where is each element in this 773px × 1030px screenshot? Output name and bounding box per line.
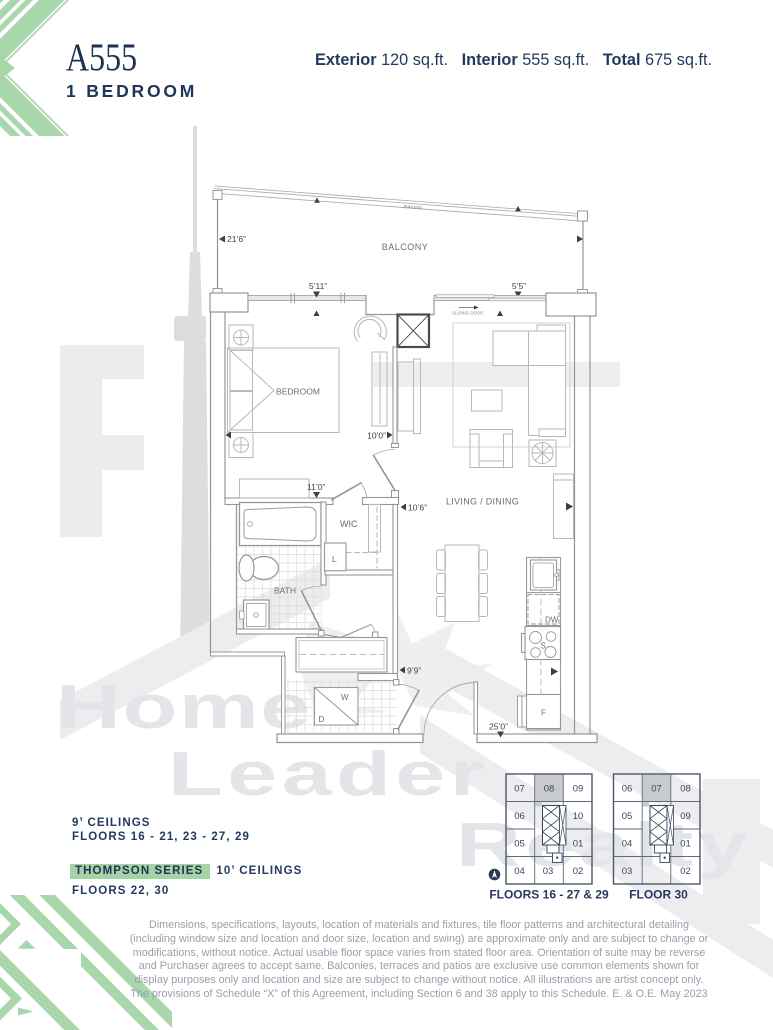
svg-text:09: 09	[573, 784, 584, 795]
svg-text:10’6”: 10’6”	[408, 503, 427, 513]
svg-text:RAILING: RAILING	[404, 204, 423, 210]
svg-text:DW: DW	[545, 616, 559, 625]
svg-text:03: 03	[543, 866, 554, 877]
svg-text:LIVING / DINING: LIVING / DINING	[446, 497, 519, 507]
svg-text:S: S	[541, 642, 546, 651]
svg-text:09: 09	[680, 811, 691, 822]
svg-text:WIC: WIC	[340, 519, 358, 529]
svg-text:04: 04	[514, 866, 525, 877]
svg-text:01: 01	[573, 839, 584, 850]
svg-text:5’11”: 5’11”	[309, 281, 327, 291]
svg-text:FLOOR 30: FLOOR 30	[629, 888, 688, 902]
svg-text:Leader: Leader	[168, 740, 489, 809]
svg-text:SLIDING DOOR: SLIDING DOOR	[452, 311, 483, 316]
svg-text:06: 06	[514, 811, 525, 822]
svg-text:9’9”: 9’9”	[407, 666, 421, 676]
svg-text:05: 05	[514, 839, 525, 850]
svg-text:11’0”: 11’0”	[307, 482, 325, 492]
svg-text:BATH: BATH	[274, 586, 296, 596]
svg-text:07: 07	[651, 784, 662, 795]
svg-text:W: W	[341, 693, 349, 702]
svg-text:05: 05	[622, 811, 633, 822]
svg-text:Realty: Realty	[456, 811, 752, 880]
svg-text:08: 08	[544, 784, 555, 795]
svg-text:F: F	[541, 709, 546, 718]
svg-text:10: 10	[573, 811, 584, 822]
svg-text:Home: Home	[56, 673, 312, 742]
svg-text:D: D	[319, 715, 325, 724]
svg-text:08: 08	[680, 784, 691, 795]
svg-text:5’5”: 5’5”	[512, 281, 526, 291]
svg-text:03: 03	[622, 866, 633, 877]
svg-text:04: 04	[622, 839, 633, 850]
svg-text:06: 06	[622, 784, 633, 795]
svg-text:BEDROOM: BEDROOM	[276, 387, 320, 397]
svg-text:07: 07	[514, 784, 525, 795]
svg-text:L: L	[332, 554, 337, 564]
svg-text:BALCONY: BALCONY	[382, 242, 429, 252]
svg-text:FLOORS 16 - 27 & 29: FLOORS 16 - 27 & 29	[489, 888, 609, 902]
svg-text:10’0”: 10’0”	[367, 431, 386, 441]
svg-text:02: 02	[680, 866, 691, 877]
svg-text:25’0”: 25’0”	[489, 722, 508, 732]
svg-text:01: 01	[680, 839, 691, 850]
svg-text:02: 02	[573, 866, 584, 877]
svg-text:21’6”: 21’6”	[227, 234, 246, 244]
